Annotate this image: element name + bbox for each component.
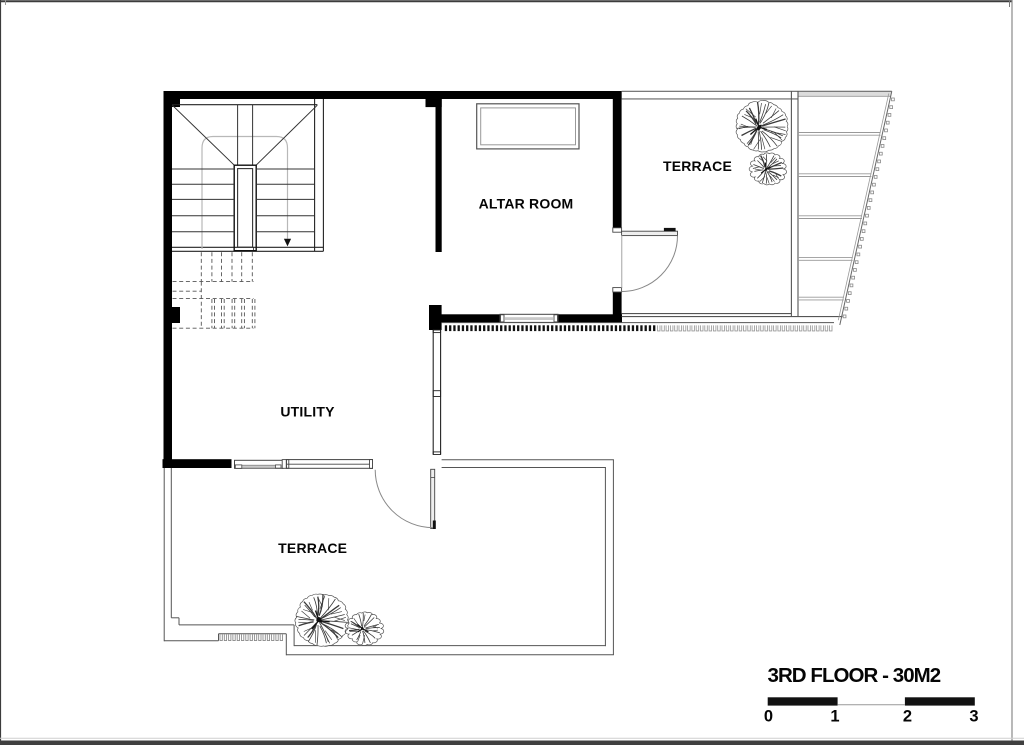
svg-text:1: 1 [830,707,839,725]
svg-text:UTILITY: UTILITY [280,403,335,419]
svg-text:TERRACE: TERRACE [663,158,732,174]
svg-text:0: 0 [764,707,773,725]
svg-text:2: 2 [903,707,912,725]
svg-text:ALTAR ROOM: ALTAR ROOM [479,195,574,211]
svg-text:3RD FLOOR - 30M2: 3RD FLOOR - 30M2 [768,664,941,687]
svg-text:TERRACE: TERRACE [278,540,347,556]
svg-text:3: 3 [969,707,978,725]
